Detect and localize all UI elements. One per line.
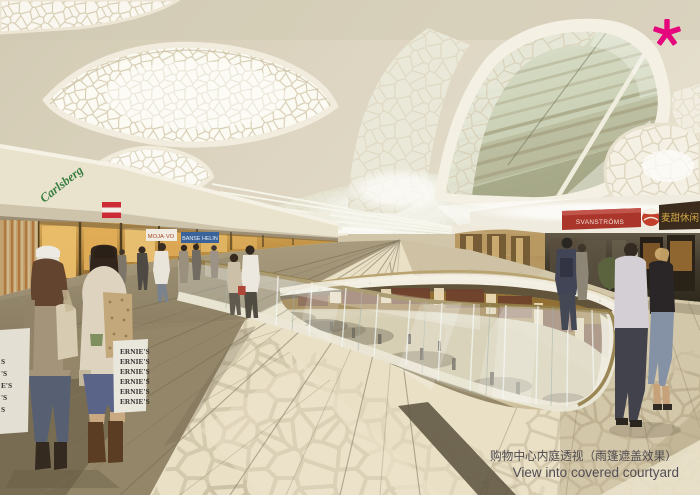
- svg-text:购物中心内庭透视（雨篷遮盖效果）: 购物中心内庭透视（雨篷遮盖效果）: [490, 449, 677, 463]
- svg-text:View into covered courtyard: View into covered courtyard: [513, 465, 679, 480]
